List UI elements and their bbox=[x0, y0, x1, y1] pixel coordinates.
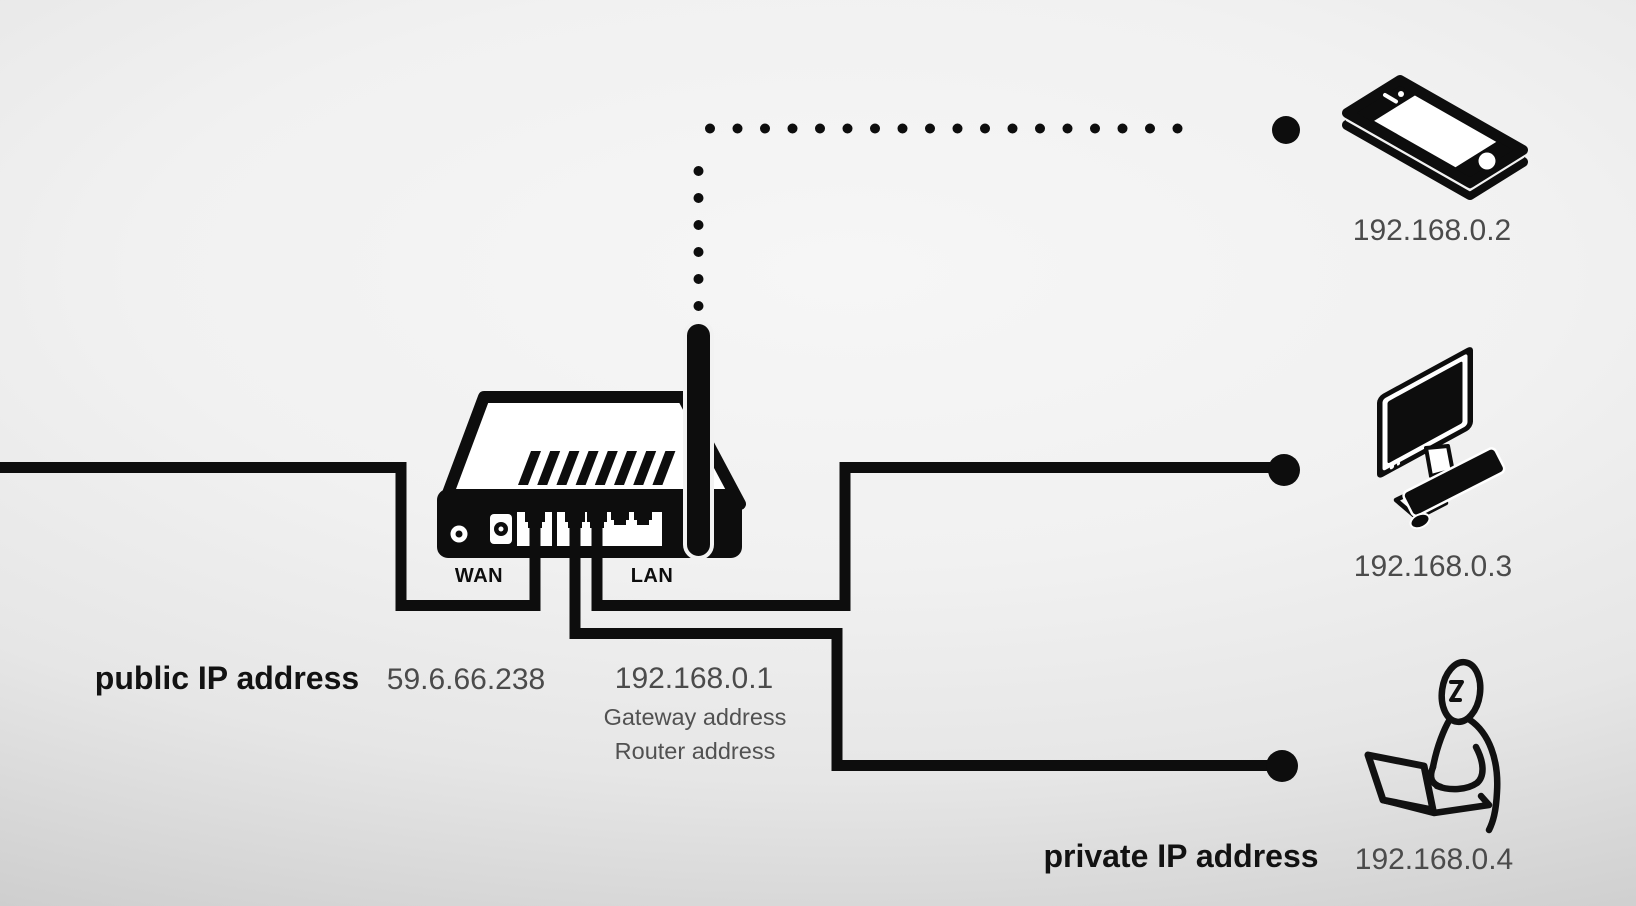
person-body-left bbox=[1433, 719, 1450, 767]
monitor bbox=[1377, 345, 1473, 480]
connection-endpoint-dots bbox=[1266, 116, 1300, 782]
antenna-icon bbox=[685, 322, 712, 558]
desktop-ip-value: 192.168.0.3 bbox=[1354, 552, 1512, 582]
laptop-ip-value: 192.168.0.4 bbox=[1355, 845, 1513, 875]
desktop-endpoint-dot bbox=[1268, 454, 1300, 486]
router-ip-value: 192.168.0.1 bbox=[615, 664, 773, 694]
router-power-jack bbox=[490, 514, 512, 544]
private-ip-label: private IP address bbox=[1043, 840, 1318, 872]
person-hand bbox=[1431, 767, 1441, 787]
person-arm bbox=[1437, 747, 1483, 789]
laptop-base bbox=[1383, 796, 1489, 813]
laptop-endpoint-dot bbox=[1266, 750, 1298, 782]
phone-endpoint-dot bbox=[1272, 116, 1300, 144]
smartphone-icon bbox=[1347, 80, 1523, 195]
wifi-dotted-link bbox=[699, 129, 1206, 307]
router-ip-role-router: Router address bbox=[615, 740, 776, 764]
person-face-mark bbox=[1451, 682, 1462, 700]
phone-ip-value: 192.168.0.2 bbox=[1353, 216, 1511, 246]
network-diagram: WAN LAN public IP address 59.6.66.238 19… bbox=[0, 0, 1636, 906]
person-laptop-icon bbox=[1368, 660, 1497, 830]
public-ip-value: 59.6.66.238 bbox=[387, 665, 545, 695]
wan-port-label: WAN bbox=[455, 566, 503, 586]
phone-camera-dot bbox=[1398, 91, 1404, 97]
router-reset-led bbox=[451, 526, 468, 543]
phone-home-button bbox=[1479, 153, 1496, 170]
person-head bbox=[1438, 660, 1484, 725]
public-ip-label: public IP address bbox=[95, 662, 359, 694]
diagram-artwork bbox=[0, 0, 1636, 906]
router-icon bbox=[437, 322, 742, 558]
desktop-computer-icon bbox=[1377, 345, 1506, 531]
lan-port-label: LAN bbox=[631, 566, 674, 586]
router-ip-role-gateway: Gateway address bbox=[604, 706, 787, 730]
